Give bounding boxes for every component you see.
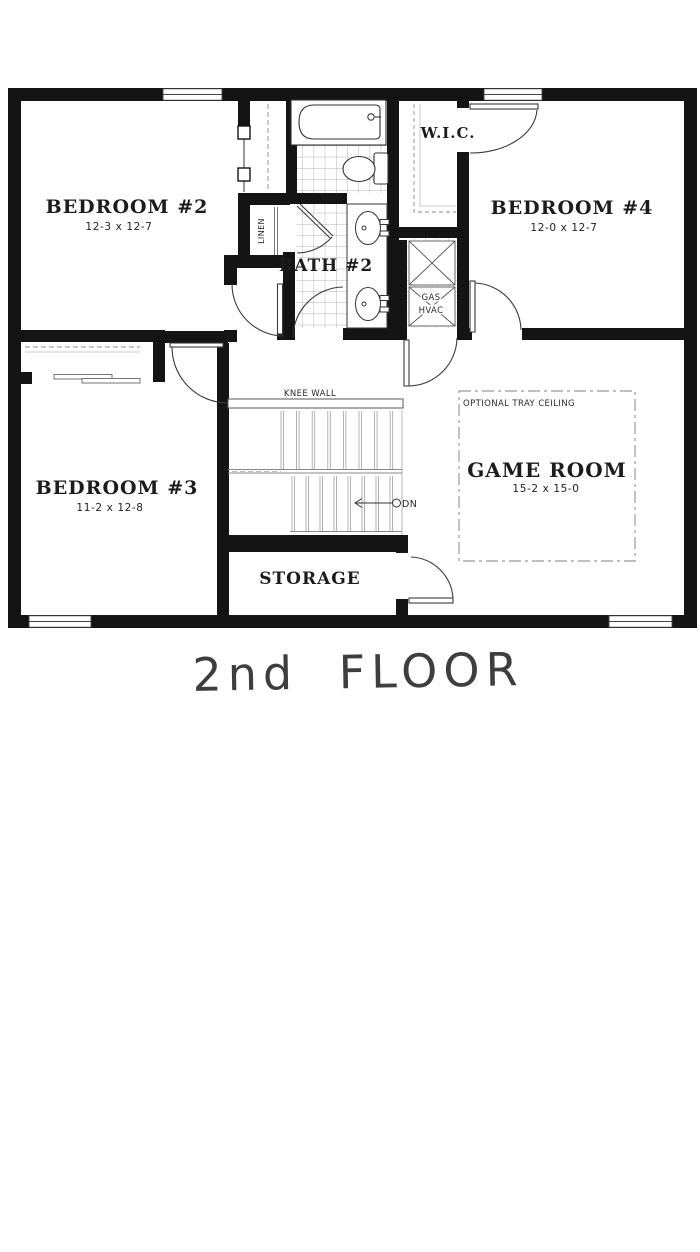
floor-title: 2nd FLOOR xyxy=(192,642,524,702)
floor-plan-page: BEDROOM #2 12-3 x 12-7 BEDROOM #4 12-0 x… xyxy=(0,0,700,1252)
room-bedroom2: BEDROOM #2 12-3 x 12-7 xyxy=(46,196,209,233)
bathtub-fixture xyxy=(291,100,386,145)
window-bedroom4 xyxy=(484,89,542,100)
tray-ceiling-note: OPTIONAL TRAY CEILING xyxy=(463,399,575,409)
window-bedroom2 xyxy=(163,89,222,100)
bedroom3-closet xyxy=(25,347,140,383)
stair-landing-lines xyxy=(228,470,402,474)
floor-plan-drawing: BEDROOM #2 12-3 x 12-7 BEDROOM #4 12-0 x… xyxy=(0,0,700,1252)
game-room-label: GAME ROOM xyxy=(467,458,627,482)
game-room-dims: 15-2 x 15-0 xyxy=(512,483,579,495)
stair-treads-upper xyxy=(281,411,393,469)
bedroom4-door xyxy=(470,281,521,332)
bedroom2-door xyxy=(232,284,284,336)
room-game-room: GAME ROOM 15-2 x 15-0 xyxy=(467,458,627,495)
bedroom2-label: BEDROOM #2 xyxy=(46,196,209,218)
gas-label: GAS xyxy=(422,293,441,303)
bedroom2-dims: 12-3 x 12-7 xyxy=(85,221,152,233)
storage-door xyxy=(409,557,453,603)
bedroom4-dims: 12-0 x 12-7 xyxy=(530,222,597,234)
game-room-door xyxy=(404,338,457,386)
window-bedroom3 xyxy=(29,616,91,627)
room-bedroom3: BEDROOM #3 11-2 x 12-8 xyxy=(36,477,199,514)
knee-wall-label: KNEE WALL xyxy=(284,389,336,399)
room-bedroom4: BEDROOM #4 12-0 x 12-7 xyxy=(491,197,654,234)
wic-shelving xyxy=(414,104,456,212)
linen-closet xyxy=(275,207,278,255)
stairwell xyxy=(228,399,403,535)
bypass-door-2 xyxy=(82,379,140,384)
storage-label: STORAGE xyxy=(259,569,361,589)
bedroom3-dims: 11-2 x 12-8 xyxy=(76,502,143,514)
wic-door xyxy=(470,104,538,153)
wic-label: W.I.C. xyxy=(420,124,476,142)
bath2-label: BATH #2 xyxy=(279,256,373,276)
down-label: DN xyxy=(402,499,417,510)
bedroom4-label: BEDROOM #4 xyxy=(491,197,654,219)
linen-label: LINEN xyxy=(257,218,266,244)
knee-wall xyxy=(228,399,403,408)
hvac-label: HVAC xyxy=(419,306,444,316)
bedroom3-label: BEDROOM #3 xyxy=(36,477,199,499)
window-game-room xyxy=(609,616,672,627)
